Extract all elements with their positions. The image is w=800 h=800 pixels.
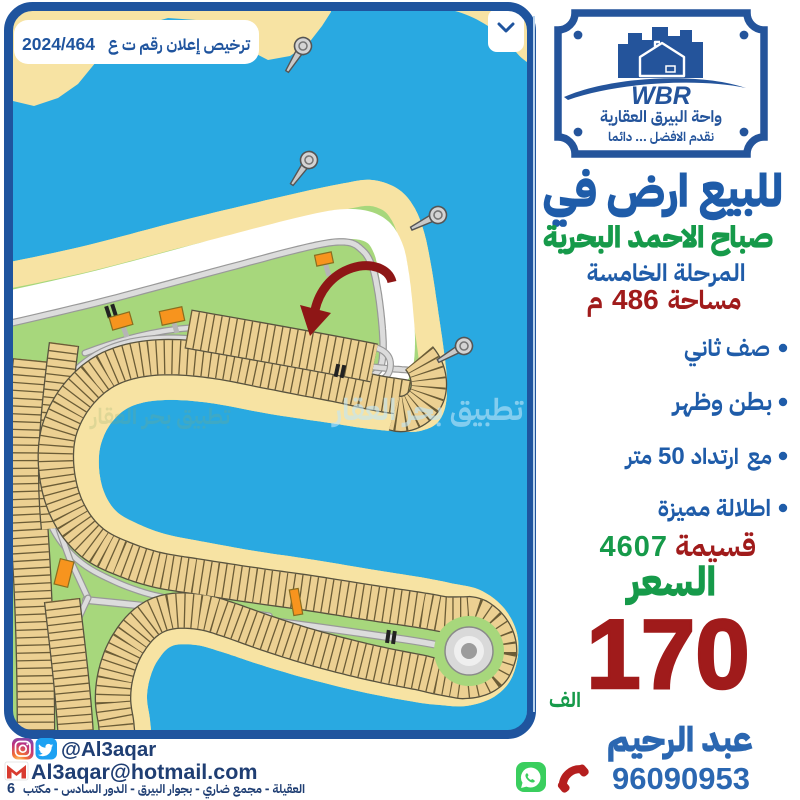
svg-text:96090953: 96090953: [612, 761, 750, 796]
svg-text:Al3aqar@hotmail.com: Al3aqar@hotmail.com: [31, 760, 257, 784]
svg-text:@Al3aqar: @Al3aqar: [61, 738, 156, 761]
svg-text:170: 170: [586, 599, 750, 709]
svg-text:2024/464: 2024/464: [22, 34, 95, 54]
svg-text:6: 6: [7, 781, 15, 797]
svg-text:4607: 4607: [599, 531, 668, 563]
svg-text:WBR: WBR: [631, 82, 691, 110]
svg-text:486: 486: [612, 284, 659, 315]
svg-text:50: 50: [658, 443, 685, 470]
